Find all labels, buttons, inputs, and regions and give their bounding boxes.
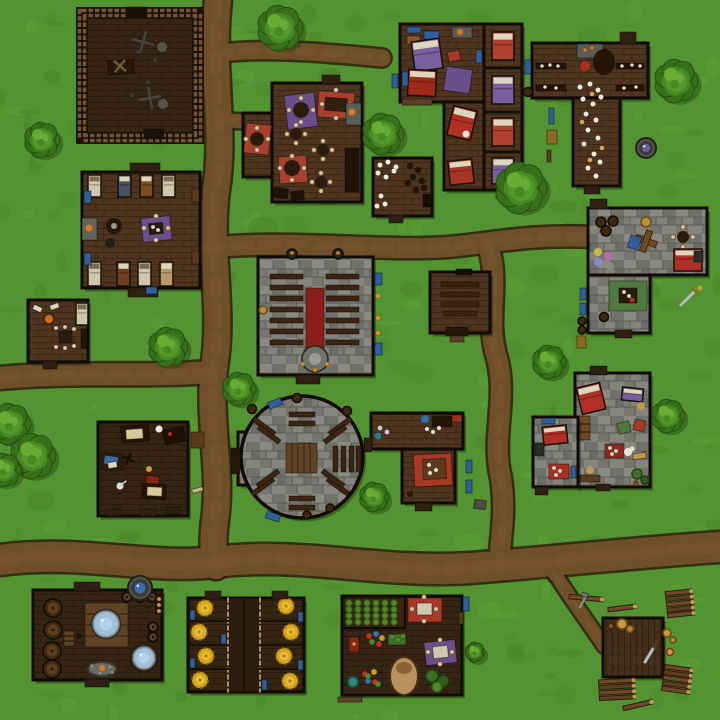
grass-tuft <box>390 359 411 374</box>
grass-tuft <box>610 501 629 508</box>
porch-north <box>620 32 636 44</box>
statue-gold <box>259 306 267 314</box>
fence-out-s <box>338 697 362 702</box>
porch-north <box>590 199 607 209</box>
barrel-n3 <box>601 226 611 236</box>
gem-4 <box>606 262 614 270</box>
bench-n1 <box>289 412 315 417</box>
bowl-teal <box>375 433 382 440</box>
pew-l5 <box>270 318 303 323</box>
building-stone-house-east[interactable] <box>575 366 653 491</box>
building-bunkhouse[interactable] <box>82 163 203 297</box>
pew-l3 <box>270 296 303 301</box>
bed-n4 <box>162 175 175 197</box>
bench-outside-w <box>525 60 531 74</box>
pew-r7 <box>326 340 359 345</box>
bed-room-2 <box>492 76 514 104</box>
plate-gold-2 <box>627 626 634 633</box>
bush-3 <box>432 682 442 692</box>
grass-tuft <box>59 192 76 209</box>
table-se <box>432 645 448 659</box>
bowl-teal <box>348 677 358 687</box>
vase-blue <box>421 415 429 423</box>
fire <box>349 109 356 116</box>
bed-red-canopy <box>407 69 436 96</box>
crop-row-6 <box>391 600 397 625</box>
bench-out-1 <box>466 460 472 473</box>
shelf <box>81 329 87 348</box>
mat-blue-south <box>146 287 157 294</box>
grass-tuft <box>44 519 67 534</box>
bed-s3 <box>138 262 151 286</box>
post-outside-sw <box>549 108 554 124</box>
sofa-ne <box>163 426 186 444</box>
bench-out-2 <box>580 303 586 315</box>
crate-2 <box>291 190 305 200</box>
table-round-west <box>250 132 264 146</box>
plate <box>111 223 117 229</box>
kettle <box>105 238 115 248</box>
porch-s <box>85 679 109 687</box>
ink-red <box>630 298 635 303</box>
barrel-s1 <box>303 511 311 519</box>
bench-west-2 <box>536 85 566 91</box>
poultry-house-room-1 <box>573 98 620 186</box>
barrel-big-2 <box>44 621 62 639</box>
gold-ink <box>146 466 152 472</box>
bench-e4 <box>356 446 361 472</box>
keg-4 <box>148 622 158 632</box>
porch-s1 <box>106 509 121 516</box>
parchment-nw <box>126 428 144 439</box>
grass-tuft <box>418 530 438 537</box>
porch-south <box>584 186 600 194</box>
cat-white <box>463 131 470 138</box>
pew-r3 <box>326 296 359 301</box>
bench-s1 <box>289 496 315 501</box>
map-canvas[interactable] <box>0 0 720 720</box>
keg-gold <box>577 336 586 348</box>
grass-tuft <box>25 20 40 33</box>
cat-head <box>630 447 635 452</box>
cushion-red <box>168 432 172 436</box>
grass-tuft <box>117 532 141 543</box>
pew-l7 <box>270 340 303 345</box>
porch-north <box>322 75 340 84</box>
porch-south <box>535 487 548 495</box>
road-main-vertical-wear <box>212 0 219 566</box>
pew-r4 <box>326 307 359 312</box>
trough-e1 <box>298 612 303 622</box>
porch-south <box>43 361 57 369</box>
bench-blue-out <box>463 597 469 611</box>
bed-n2 <box>118 175 131 197</box>
building-cottage[interactable] <box>28 300 91 369</box>
trough-e3 <box>262 680 267 690</box>
table-round-1 <box>293 102 309 118</box>
keg-gold <box>547 130 557 144</box>
table-round <box>677 231 689 243</box>
stage <box>286 443 317 473</box>
porch-n <box>74 582 100 591</box>
bed <box>76 303 88 325</box>
grass-tuft <box>687 130 702 136</box>
bench-blue-w <box>402 72 408 86</box>
fence-west <box>402 99 432 105</box>
log-end-2[interactable] <box>670 637 676 643</box>
bench-blue-w1 <box>84 191 91 203</box>
grass-tuft <box>27 491 54 511</box>
log-end-3[interactable] <box>667 649 674 656</box>
grass-tuft <box>465 10 492 24</box>
trough-w1 <box>190 610 195 620</box>
hay-e1 <box>278 598 294 614</box>
grass-tuft <box>400 282 423 297</box>
map-white <box>108 461 118 468</box>
bed-room-3 <box>492 118 514 146</box>
gem-2 <box>604 252 612 260</box>
bed-purple <box>621 387 643 402</box>
lintel <box>456 269 472 275</box>
table-e1 <box>192 189 199 202</box>
porch-south <box>389 215 403 223</box>
orb <box>156 426 163 433</box>
hay-w2 <box>191 624 207 640</box>
well-east[interactable] <box>636 138 656 158</box>
porch-south <box>615 330 632 338</box>
grass-tuft <box>422 112 429 129</box>
grass-tuft <box>250 212 262 218</box>
grass-tuft <box>57 251 67 273</box>
trough-w3 <box>221 634 226 644</box>
plate-gold-3 <box>608 623 614 629</box>
grass-tuft <box>39 577 58 583</box>
building-training-yard[interactable] <box>82 7 201 142</box>
step <box>450 336 464 342</box>
well-brewery[interactable] <box>128 576 152 600</box>
grass-tuft <box>382 14 400 22</box>
porch-n1 <box>205 591 221 599</box>
plate-gold-1 <box>617 619 627 629</box>
grass-tuft <box>372 320 403 325</box>
fermenter <box>132 646 157 671</box>
bench-blue-e <box>476 50 482 63</box>
grass-tuft <box>657 126 689 132</box>
porch-west <box>364 438 372 452</box>
bench-blue-n <box>407 27 421 33</box>
pew-r5 <box>326 318 359 323</box>
log-stack-e[interactable] <box>661 664 693 694</box>
grass-tuft <box>688 372 713 381</box>
building-farm[interactable] <box>338 595 469 702</box>
bench-out-1 <box>580 288 586 300</box>
bed-s2 <box>117 262 130 286</box>
grass-tuft <box>23 210 35 219</box>
chest-lock <box>352 642 356 646</box>
bed-s4 <box>160 262 173 286</box>
chest-dark <box>694 251 703 262</box>
bench-s2 <box>289 505 315 510</box>
porch-n2 <box>272 591 288 599</box>
armor-pile-1 <box>157 42 167 52</box>
trough-e2 <box>298 660 303 670</box>
wheel-red <box>580 61 590 71</box>
armor-pile-2 <box>158 99 168 109</box>
porch-s2 <box>140 509 156 516</box>
bench-4 <box>443 311 477 316</box>
bench-e3 <box>349 446 354 472</box>
table <box>59 331 72 343</box>
grass-tuft <box>175 691 188 702</box>
grass-tuft <box>285 216 307 234</box>
grass-tuft <box>166 580 178 592</box>
crop-row-3 <box>364 600 370 625</box>
building-church[interactable] <box>258 249 382 384</box>
grass-tuft <box>693 437 720 445</box>
log-end-1[interactable] <box>663 629 671 637</box>
hay-e4 <box>282 673 298 689</box>
grass-tuft <box>15 528 24 538</box>
table-small-1 <box>290 128 302 140</box>
wood-pile <box>593 49 615 75</box>
table-center <box>148 222 163 234</box>
grass-tuft <box>43 21 67 26</box>
table-north <box>432 416 452 427</box>
pew-r1 <box>326 274 359 279</box>
grass-tuft <box>44 70 61 84</box>
stool <box>407 491 413 497</box>
chair-red <box>447 50 461 62</box>
bed-room-1 <box>492 32 514 60</box>
grass-tuft <box>62 697 77 713</box>
gate-north <box>127 7 147 17</box>
grass-tuft <box>649 688 664 709</box>
stove-dark <box>535 443 544 456</box>
grass-tuft <box>557 650 585 657</box>
bench-e2 <box>341 446 346 472</box>
gem-1 <box>594 248 602 256</box>
taps <box>157 597 161 613</box>
grass-tuft <box>559 317 580 326</box>
grass-tuft <box>323 584 347 589</box>
banner-blue-2 <box>375 343 382 355</box>
grass-tuft <box>550 185 557 193</box>
bench-outside <box>392 74 398 88</box>
pew-r6 <box>326 329 359 334</box>
building-meeting-hall[interactable] <box>430 269 493 342</box>
pew-l2 <box>270 285 303 290</box>
crop-row-1 <box>346 600 352 625</box>
building-stables[interactable] <box>188 591 307 696</box>
grass-tuft <box>545 646 556 655</box>
building-chicken-coop[interactable] <box>373 158 435 223</box>
grass-tuft <box>627 0 642 21</box>
barrel-ne <box>343 407 352 416</box>
barrel-big-3 <box>43 642 61 660</box>
bench-out-2 <box>466 480 472 493</box>
grass-tuft <box>686 486 701 494</box>
porch-north <box>590 366 607 375</box>
plant-2 <box>641 476 649 484</box>
grass-tuft <box>507 643 525 664</box>
village-battle-map[interactable] <box>0 0 720 720</box>
barrel-n1 <box>293 394 302 403</box>
bench-e1 <box>333 446 338 472</box>
post-sw-2 <box>547 150 551 162</box>
fire <box>457 29 463 35</box>
ladder <box>64 631 74 646</box>
porch-south <box>296 375 320 384</box>
bar-counter <box>345 148 359 192</box>
porch-north <box>130 163 160 172</box>
pew-l6 <box>270 329 303 334</box>
bench-3 <box>441 302 479 307</box>
grass-tuft <box>504 278 528 296</box>
hay-e2 <box>283 624 299 640</box>
table-round-south <box>284 160 300 176</box>
grass-tuft <box>477 601 503 618</box>
bench-1 <box>441 282 479 287</box>
altar-inner <box>309 353 321 365</box>
grass-tuft <box>549 200 578 212</box>
barrel-big-4 <box>43 660 61 678</box>
bed-purple-large <box>411 38 443 72</box>
barrel-s2 <box>326 504 334 512</box>
pew-l1 <box>270 274 303 279</box>
banner-blue-1 <box>375 273 382 285</box>
grass-tuft <box>531 308 559 315</box>
bed-south <box>448 159 474 185</box>
porch-s3 <box>166 507 180 514</box>
porch-south <box>415 503 432 511</box>
chair-red <box>633 419 646 432</box>
stool <box>76 633 82 639</box>
rug-purple <box>443 66 472 93</box>
grass-tuft <box>540 582 550 602</box>
bench-blue-e <box>571 466 576 478</box>
gem-3 <box>594 258 602 266</box>
keg-5 <box>148 632 158 642</box>
log-stack-ne[interactable] <box>665 589 696 618</box>
bench-2 <box>441 292 479 297</box>
parchment-s <box>147 487 162 497</box>
crop-row-4 <box>373 600 379 625</box>
bench-n2 <box>289 421 315 426</box>
straw <box>633 452 647 460</box>
training-yard-room-0 <box>82 13 198 138</box>
barrel-outside-w <box>524 88 533 97</box>
hay-w3 <box>198 648 214 664</box>
porch-south <box>596 484 610 491</box>
pot <box>633 480 639 486</box>
grass-tuft <box>545 674 555 679</box>
barrel-n2 <box>608 216 618 226</box>
crop-row-2 <box>355 600 361 625</box>
post-out <box>459 612 463 624</box>
cauldron <box>44 314 54 324</box>
road-bench[interactable] <box>473 499 486 510</box>
bed-n3 <box>140 175 153 197</box>
crate-1 <box>273 187 288 199</box>
grass-tuft <box>656 185 679 199</box>
sack <box>637 402 645 410</box>
grass-tuft <box>503 635 516 640</box>
grass-tuft <box>454 534 485 552</box>
sword-pommel[interactable] <box>698 286 703 291</box>
table-small-2 <box>317 144 329 156</box>
hay-w4 <box>192 672 208 688</box>
table-ne <box>417 603 432 615</box>
grass-tuft <box>352 714 360 719</box>
mash-tun <box>92 610 121 639</box>
feed-trough <box>423 194 431 207</box>
bench-blue-n <box>542 418 555 424</box>
table-out-e <box>191 432 204 448</box>
building-stone-house-south[interactable] <box>533 417 581 495</box>
barrel-out-1 <box>578 317 586 325</box>
chandelier <box>641 217 651 227</box>
grass-tuft <box>529 266 559 286</box>
grass-tuft <box>48 211 60 220</box>
bed-red <box>542 425 568 445</box>
barrel-s <box>600 313 609 322</box>
barrel-out-2 <box>578 326 586 334</box>
grass-tuft <box>669 153 684 168</box>
hay-w1 <box>197 600 213 616</box>
table-small-3 <box>315 176 327 188</box>
plant-1 <box>632 469 642 479</box>
grass-tuft <box>563 339 574 356</box>
grass-tuft <box>554 684 576 705</box>
building-sawmill[interactable] <box>603 618 666 681</box>
crate-red <box>452 415 462 422</box>
entry-step <box>231 448 240 474</box>
trough-w2 <box>190 658 195 668</box>
grass-tuft <box>674 173 697 179</box>
table-rect-ne <box>325 97 348 112</box>
oven-mouth <box>396 662 412 674</box>
barrel-big-1 <box>44 599 62 617</box>
bed-s1 <box>88 262 101 286</box>
bench-south <box>580 475 600 482</box>
sack-2 <box>586 466 594 474</box>
pew-l4 <box>270 307 303 312</box>
bench-blue-w2 <box>84 253 91 265</box>
crop-row-5 <box>382 600 388 625</box>
hearth-fire <box>99 665 105 671</box>
fire <box>86 225 93 232</box>
hay-e3 <box>276 648 292 664</box>
grass-tuft <box>346 15 364 33</box>
building-study[interactable] <box>98 422 204 520</box>
table-e2 <box>192 251 199 264</box>
grass-tuft <box>38 693 64 698</box>
grass-tuft <box>91 405 99 410</box>
gate-south <box>144 129 164 139</box>
pew-r2 <box>326 285 359 290</box>
chair-green <box>617 421 631 435</box>
grass-tuft <box>401 302 420 309</box>
grass-tuft <box>634 111 641 121</box>
bush-1 <box>426 670 438 682</box>
bench-east-2 <box>616 85 644 91</box>
porch-south <box>446 327 468 336</box>
